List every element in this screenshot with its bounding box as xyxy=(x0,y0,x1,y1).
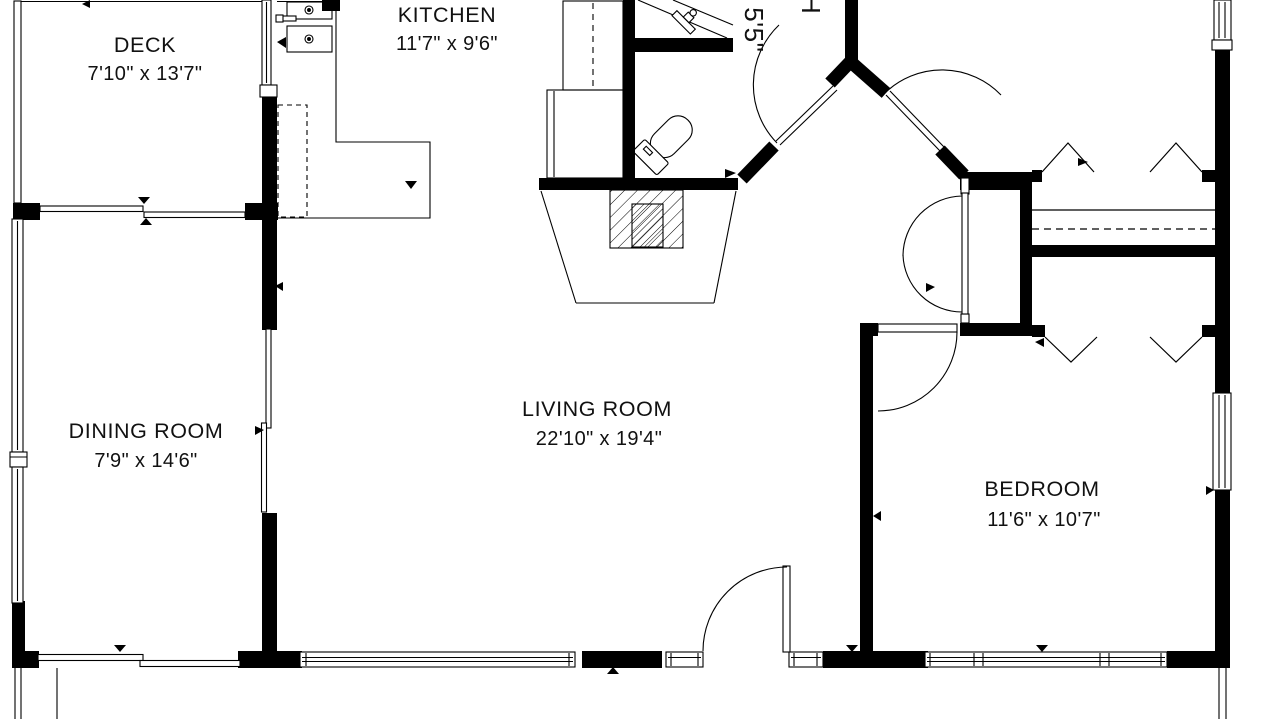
room-dims-bath-rotated: x 5'5" xyxy=(739,0,769,52)
sliding-door-panel xyxy=(140,661,240,667)
range-icon xyxy=(547,90,623,178)
walls xyxy=(12,0,1230,668)
floor-plan-page: DECK 7'10" x 13'7" KITCHEN 11'7" x 9'6" … xyxy=(0,0,1280,720)
bifold-door-chevron xyxy=(1150,337,1202,362)
kitchen-fixtures xyxy=(14,0,623,218)
wall xyxy=(860,323,873,668)
fireplace-firebox xyxy=(632,204,663,247)
sliding-door-panel xyxy=(38,655,143,661)
door-jamb xyxy=(961,178,969,194)
room-dims-living: 22'10" x 19'4" xyxy=(536,428,662,450)
dishwasher-icon xyxy=(278,105,307,217)
window-sill xyxy=(1212,40,1232,50)
wall xyxy=(1020,172,1032,333)
bifold-door-chevron xyxy=(1150,143,1202,172)
door-leaf xyxy=(783,566,790,652)
door-leaf xyxy=(780,90,837,145)
doors xyxy=(703,25,1001,652)
wall xyxy=(238,651,302,668)
pocket-door-panel xyxy=(266,329,271,428)
sink-drain-dot xyxy=(308,9,311,12)
angled-wall xyxy=(830,61,851,83)
fireplace xyxy=(541,190,736,303)
closet-door-leaf xyxy=(962,193,968,314)
windows xyxy=(10,0,1232,719)
faucet-handle-icon xyxy=(276,15,283,22)
window xyxy=(1214,0,1231,40)
window xyxy=(925,652,1167,667)
wall xyxy=(1215,48,1230,393)
door-swing-arc xyxy=(703,567,787,651)
wall xyxy=(623,0,635,190)
wall xyxy=(823,651,928,668)
sliding-door-panel xyxy=(40,206,143,212)
room-dims-dining: 7'9" x 14'6" xyxy=(94,450,197,472)
window-sill xyxy=(10,452,27,467)
floor-plan-drawing: DECK 7'10" x 13'7" KITCHEN 11'7" x 9'6" … xyxy=(0,0,1280,720)
hearth-edge xyxy=(541,191,576,303)
wall xyxy=(960,323,1032,336)
room-dims-kitchen: 11'7" x 9'6" xyxy=(396,33,498,55)
bifold-door-chevron xyxy=(1042,143,1094,172)
door-swing-arc xyxy=(878,332,957,411)
deck-rail xyxy=(14,1,21,203)
door-jamb xyxy=(961,314,969,323)
wall xyxy=(1032,170,1042,182)
wall xyxy=(262,97,277,330)
angled-wall xyxy=(940,150,964,175)
arrow-down-icon xyxy=(1036,645,1048,652)
wall xyxy=(582,651,662,668)
wall xyxy=(262,513,277,668)
room-label-bath-rotated: H xyxy=(796,0,826,14)
room-label-kitchen: KITCHEN xyxy=(398,3,497,27)
door-leaf xyxy=(890,91,944,147)
sliding-door-panel xyxy=(144,212,245,218)
window-sill xyxy=(260,85,277,97)
angled-wall xyxy=(742,146,774,179)
wall xyxy=(12,651,39,668)
sink-drain-dot xyxy=(308,38,311,41)
door-swing-arc xyxy=(885,70,1001,95)
room-label-dining: DINING ROOM xyxy=(69,419,224,443)
wall xyxy=(1202,325,1215,337)
wall xyxy=(1032,325,1045,337)
wall xyxy=(860,323,878,336)
arrow-up-icon xyxy=(607,667,619,674)
room-label-bedroom: BEDROOM xyxy=(984,477,1099,501)
bifold-door-chevron xyxy=(1045,337,1097,362)
arrow-up-icon xyxy=(140,218,152,225)
wall xyxy=(539,178,738,190)
arrow-left-icon xyxy=(277,37,286,48)
door-leaf xyxy=(776,86,833,141)
toilet-icon xyxy=(633,108,700,175)
door-leaf xyxy=(886,95,940,151)
door-swing-arc xyxy=(903,255,962,312)
room-dims-deck: 7'10" x 13'7" xyxy=(88,63,203,85)
wall xyxy=(1215,490,1230,668)
bath-fixtures xyxy=(633,0,733,175)
door-leaf xyxy=(878,324,957,332)
arrow-down-icon xyxy=(138,197,150,204)
window xyxy=(300,652,575,667)
arrow-right-icon xyxy=(725,169,736,178)
room-label-deck: DECK xyxy=(114,33,176,57)
window xyxy=(1213,393,1231,490)
door-swing-arc xyxy=(903,196,962,256)
room-label-living: LIVING ROOM xyxy=(522,397,672,421)
room-dims-bedroom: 11'6" x 10'7" xyxy=(987,509,1100,531)
hearth-edge xyxy=(714,191,736,303)
arrow-left-icon xyxy=(1035,338,1044,347)
wall xyxy=(845,0,858,64)
arrow-down-icon xyxy=(846,645,858,652)
pocket-door-panel xyxy=(262,423,267,512)
angled-wall xyxy=(852,63,886,93)
arrow-right-icon xyxy=(926,283,935,292)
wall xyxy=(1032,245,1215,257)
wall xyxy=(1202,170,1215,182)
arrow-down-icon xyxy=(114,645,126,652)
wall xyxy=(13,203,40,220)
room-labels: DECK 7'10" x 13'7" KITCHEN 11'7" x 9'6" … xyxy=(69,0,1101,531)
arrow-left-icon xyxy=(873,511,881,521)
arrow-down-icon xyxy=(405,181,417,189)
wall xyxy=(322,0,340,11)
wall xyxy=(635,38,733,52)
